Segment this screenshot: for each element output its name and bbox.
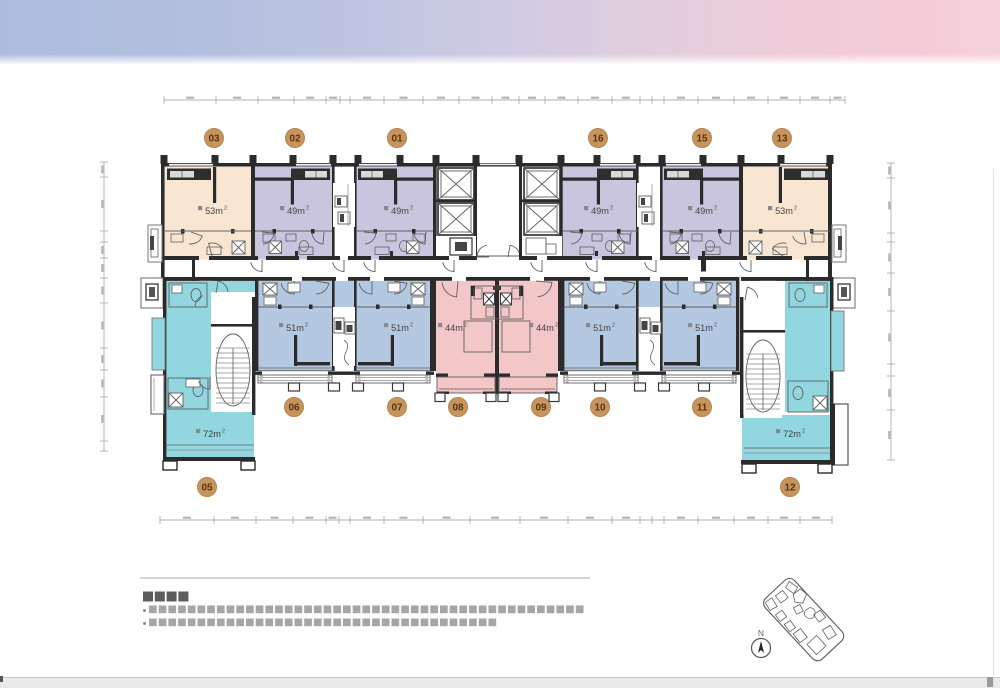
svg-text:07: 07 (391, 403, 403, 414)
svg-text:15: 15 (696, 134, 708, 145)
svg-text:44m: 44m (445, 323, 463, 333)
svg-text:2: 2 (222, 429, 225, 435)
svg-text:01: 01 (391, 134, 403, 145)
svg-text:72m: 72m (203, 429, 221, 439)
svg-text:09: 09 (535, 403, 547, 414)
svg-text:2: 2 (410, 206, 413, 212)
svg-text:51m: 51m (593, 323, 611, 333)
svg-text:2: 2 (612, 323, 615, 329)
svg-text:2: 2 (224, 206, 227, 212)
svg-text:49m: 49m (695, 206, 713, 216)
svg-text:2: 2 (714, 323, 717, 329)
svg-text:11: 11 (697, 403, 708, 414)
svg-text:N: N (758, 628, 764, 638)
svg-text:12: 12 (784, 483, 796, 494)
svg-text:2: 2 (802, 429, 805, 435)
svg-text:49m: 49m (287, 206, 305, 216)
svg-text:51m: 51m (391, 323, 409, 333)
svg-text:49m: 49m (391, 206, 409, 216)
svg-text:08: 08 (452, 403, 464, 414)
svg-text:51m: 51m (286, 323, 304, 333)
svg-text:2: 2 (464, 323, 467, 329)
svg-text:06: 06 (288, 403, 300, 414)
svg-text:05: 05 (201, 483, 213, 494)
svg-text:72m: 72m (783, 429, 801, 439)
svg-text:2: 2 (794, 206, 797, 212)
svg-text:10: 10 (594, 403, 606, 414)
svg-text:53m: 53m (775, 206, 793, 216)
svg-text:2: 2 (610, 206, 613, 212)
svg-text:53m: 53m (205, 206, 223, 216)
svg-text:03: 03 (208, 134, 220, 145)
svg-text:16: 16 (592, 134, 604, 145)
svg-text:44m: 44m (536, 323, 554, 333)
svg-text:2: 2 (410, 323, 413, 329)
svg-text:13: 13 (776, 134, 788, 145)
svg-text:2: 2 (305, 323, 308, 329)
svg-text:02: 02 (289, 134, 301, 145)
svg-text:2: 2 (555, 323, 558, 329)
svg-text:2: 2 (714, 206, 717, 212)
svg-text:51m: 51m (695, 323, 713, 333)
svg-text:49m: 49m (591, 206, 609, 216)
svg-text:2: 2 (306, 206, 309, 212)
